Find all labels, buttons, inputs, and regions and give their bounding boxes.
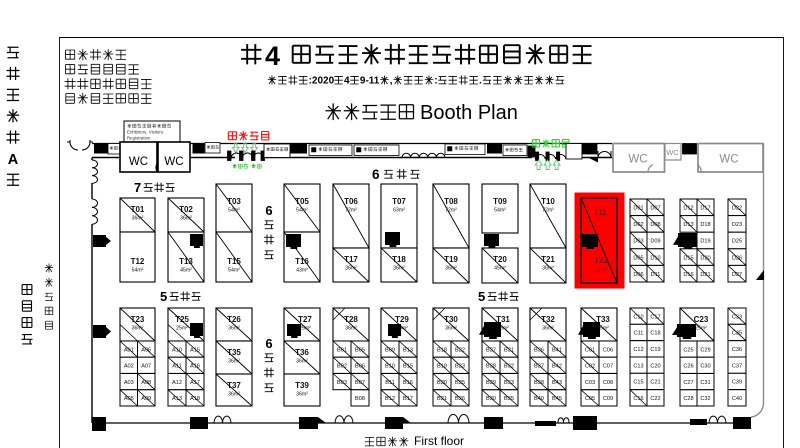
svg-text:T28: T28 (344, 315, 358, 324)
svg-text:36m²: 36m² (228, 391, 240, 397)
svg-text:D05: D05 (633, 255, 643, 261)
svg-text:45m²: 45m² (180, 267, 192, 273)
svg-text:C18: C18 (650, 331, 660, 337)
svg-text:A06: A06 (141, 347, 151, 353)
svg-text:A18: A18 (190, 396, 200, 402)
svg-text:36m²: 36m² (445, 325, 457, 331)
svg-text:D19: D19 (700, 239, 710, 245)
svg-text:T11: T11 (593, 208, 607, 217)
svg-text:C22: C22 (650, 396, 660, 402)
svg-text:C21: C21 (650, 380, 660, 386)
svg-text:A10: A10 (172, 347, 182, 353)
svg-text:C12: C12 (633, 347, 643, 353)
svg-text:72m²: 72m² (345, 207, 357, 213)
svg-text:B02: B02 (337, 364, 347, 370)
svg-text:T32: T32 (541, 315, 555, 324)
svg-text:WC: WC (719, 154, 738, 166)
svg-text:T05: T05 (295, 197, 309, 206)
svg-text:C35: C35 (732, 331, 742, 337)
svg-text:B25: B25 (455, 380, 465, 386)
svg-text:B36: B36 (534, 347, 544, 353)
svg-text:T39: T39 (295, 381, 309, 390)
svg-text:B12: B12 (385, 396, 395, 402)
svg-text:C19: C19 (650, 347, 660, 353)
svg-text:D21: D21 (700, 272, 710, 278)
svg-text:A11: A11 (172, 364, 182, 370)
svg-text:A08: A08 (141, 380, 151, 386)
svg-text:C28: C28 (683, 396, 693, 402)
svg-text:C30: C30 (700, 364, 710, 370)
svg-text:D12: D12 (683, 206, 693, 212)
svg-text:36m²: 36m² (180, 215, 192, 221)
svg-text:B09: B09 (385, 347, 395, 353)
svg-text:B17: B17 (403, 396, 413, 402)
svg-text:D08: D08 (650, 222, 660, 228)
svg-text:T37: T37 (227, 381, 241, 390)
svg-text:T25: T25 (175, 315, 189, 324)
svg-text:A: A (8, 152, 19, 168)
svg-text:72m²: 72m² (445, 207, 457, 213)
svg-text:36m²: 36m² (132, 325, 144, 331)
svg-text:T08: T08 (444, 197, 458, 206)
svg-text:C31: C31 (700, 380, 710, 386)
svg-text:A02: A02 (124, 364, 134, 370)
svg-text:B23: B23 (455, 364, 465, 370)
svg-text:B21: B21 (437, 396, 447, 402)
svg-text:9-11: 9-11 (360, 76, 380, 87)
svg-text:B13: B13 (403, 347, 413, 353)
svg-text:C27: C27 (683, 380, 693, 386)
svg-text:B37: B37 (534, 364, 544, 370)
svg-text:54m²: 54m² (494, 207, 506, 213)
svg-text:T07: T07 (392, 197, 406, 206)
svg-text:B30: B30 (486, 396, 496, 402)
svg-text:T20: T20 (493, 255, 507, 264)
svg-text:C39: C39 (732, 380, 742, 386)
svg-text:36m²: 36m² (345, 265, 357, 271)
svg-text:C02: C02 (585, 364, 595, 370)
svg-text:D17: D17 (700, 206, 710, 212)
svg-text:C37: C37 (732, 363, 742, 369)
svg-text:43m²: 43m² (296, 267, 308, 273)
svg-text:D10: D10 (650, 255, 660, 261)
svg-text:D01: D01 (633, 206, 643, 212)
svg-text:36m²: 36m² (296, 358, 308, 364)
svg-text:4: 4 (344, 76, 350, 87)
svg-text:T06: T06 (344, 197, 358, 206)
svg-text:C09: C09 (603, 396, 613, 402)
svg-text:C03: C03 (585, 380, 595, 386)
svg-text:C06: C06 (603, 347, 613, 353)
svg-text:T13: T13 (179, 257, 193, 266)
svg-text:B22: B22 (455, 347, 465, 353)
svg-text:First floor: First floor (414, 434, 464, 448)
svg-text:.: . (479, 76, 482, 87)
svg-text:D27: D27 (732, 272, 742, 278)
svg-text:B10: B10 (385, 364, 395, 370)
svg-text:54m²: 54m² (228, 267, 240, 273)
svg-text:7: 7 (134, 180, 141, 195)
svg-text:B19: B19 (437, 364, 447, 370)
svg-text:WC: WC (666, 148, 679, 157)
svg-text:6: 6 (265, 203, 272, 218)
svg-text:C10: C10 (633, 314, 643, 320)
svg-text:B03: B03 (337, 380, 347, 386)
svg-text:C07: C07 (603, 364, 613, 370)
svg-text:5: 5 (478, 289, 485, 304)
svg-text:D23: D23 (732, 222, 742, 228)
svg-text:25m²: 25m² (176, 325, 188, 331)
svg-text:D20: D20 (700, 255, 710, 261)
svg-text:36m²: 36m² (393, 265, 405, 271)
svg-text:C40: C40 (732, 396, 742, 402)
svg-text:A13: A13 (172, 396, 182, 402)
svg-text:C01: C01 (585, 347, 595, 353)
svg-text:6: 6 (265, 336, 272, 351)
svg-text:D07: D07 (650, 206, 660, 212)
svg-text:B18: B18 (437, 347, 447, 353)
svg-text:36m²: 36m² (228, 325, 240, 331)
svg-text:T29: T29 (395, 315, 409, 324)
svg-text::2020: :2020 (309, 76, 335, 87)
svg-text:A07: A07 (141, 364, 151, 370)
svg-text:B35: B35 (504, 396, 514, 402)
svg-text:A12: A12 (172, 380, 182, 386)
svg-text:D15: D15 (683, 255, 693, 261)
svg-text:54m²: 54m² (132, 267, 144, 273)
svg-text:T02: T02 (179, 205, 193, 214)
svg-text:C15: C15 (633, 380, 643, 386)
svg-text:D16: D16 (683, 272, 693, 278)
svg-text:36m²: 36m² (542, 325, 554, 331)
svg-text:D03: D03 (633, 239, 643, 245)
svg-text:T16: T16 (295, 257, 309, 266)
svg-text:,: , (390, 76, 393, 87)
svg-text:A17: A17 (190, 380, 200, 386)
svg-text:T17: T17 (344, 255, 358, 264)
svg-text:6: 6 (372, 167, 380, 182)
svg-text:A01: A01 (124, 347, 134, 353)
svg-text:T22: T22 (594, 256, 608, 265)
svg-text:B06: B06 (355, 364, 365, 370)
svg-text:B40: B40 (534, 396, 544, 402)
svg-text:T27: T27 (298, 315, 312, 324)
svg-text:C17: C17 (650, 314, 660, 320)
svg-text:Registration: Registration (127, 136, 151, 141)
svg-text:B26: B26 (455, 396, 465, 402)
svg-text:5: 5 (160, 289, 167, 304)
svg-text:B42: B42 (552, 364, 562, 370)
svg-text:B08: B08 (355, 396, 365, 402)
svg-text:D02: D02 (633, 222, 643, 228)
svg-text:36m²: 36m² (228, 358, 240, 364)
svg-text:25m²: 25m² (695, 325, 707, 331)
svg-text:C29: C29 (700, 347, 710, 353)
svg-text:B43: B43 (552, 380, 562, 386)
svg-text:36m²: 36m² (542, 265, 554, 271)
svg-text:T21: T21 (541, 255, 555, 264)
svg-text:D06: D06 (633, 272, 643, 278)
svg-text:A05: A05 (124, 396, 134, 402)
svg-text:C26: C26 (683, 364, 693, 370)
svg-text:45m²: 45m² (494, 265, 506, 271)
svg-text:C11: C11 (634, 331, 644, 337)
svg-text:T35: T35 (227, 348, 241, 357)
svg-text:T09: T09 (493, 197, 507, 206)
svg-text:T18: T18 (392, 255, 406, 264)
svg-text:Booth Plan: Booth Plan (420, 102, 518, 124)
svg-text:54m²: 54m² (296, 207, 308, 213)
svg-text:D25: D25 (732, 239, 742, 245)
svg-text:WC: WC (628, 154, 647, 166)
svg-text:WC: WC (129, 156, 148, 168)
svg-text:T19: T19 (444, 255, 458, 264)
svg-text:B20: B20 (437, 380, 447, 386)
svg-text:D09: D09 (650, 239, 660, 245)
svg-text:B31: B31 (504, 347, 514, 353)
svg-text:B05: B05 (355, 347, 365, 353)
svg-text:C08: C08 (603, 380, 613, 386)
svg-text:T30: T30 (444, 315, 458, 324)
svg-text:54m²: 54m² (228, 207, 240, 213)
svg-text:A09: A09 (141, 396, 151, 402)
svg-text:WC: WC (164, 156, 183, 168)
svg-text:D26: D26 (732, 255, 742, 261)
svg-text:C25: C25 (683, 347, 693, 353)
svg-text:B33: B33 (504, 380, 514, 386)
svg-text:C32: C32 (700, 396, 710, 402)
svg-text:C05: C05 (585, 396, 595, 402)
svg-text:D11: D11 (651, 272, 661, 278)
svg-text:C16: C16 (633, 396, 643, 402)
svg-text:T12: T12 (131, 257, 145, 266)
svg-text:C20: C20 (650, 363, 660, 369)
svg-text:T26: T26 (227, 315, 241, 324)
svg-text:Exhibitors, Visitors: Exhibitors, Visitors (127, 130, 164, 135)
svg-text:63m²: 63m² (393, 207, 405, 213)
svg-text:C13: C13 (633, 363, 643, 369)
svg-text:T23: T23 (131, 315, 145, 324)
svg-text:4: 4 (265, 41, 280, 71)
svg-text:81m²: 81m² (595, 268, 607, 274)
svg-text:C33: C33 (732, 314, 742, 320)
svg-text:B07: B07 (355, 380, 365, 386)
svg-text:A15: A15 (190, 347, 200, 353)
svg-text:B15: B15 (403, 364, 413, 370)
svg-text:B38: B38 (534, 380, 544, 386)
svg-text::: : (434, 76, 437, 87)
svg-text:T10: T10 (541, 197, 555, 206)
svg-text:36m²: 36m² (132, 215, 144, 221)
svg-text:36m²: 36m² (296, 391, 308, 397)
svg-text:A16: A16 (190, 364, 200, 370)
svg-text:A03: A03 (124, 380, 134, 386)
svg-text:B32: B32 (504, 364, 514, 370)
svg-text:D18: D18 (700, 222, 710, 228)
svg-text:B41: B41 (552, 347, 562, 353)
svg-text:T03: T03 (227, 197, 241, 206)
svg-text:36m²: 36m² (345, 325, 357, 331)
svg-text:B45: B45 (552, 396, 562, 402)
svg-text:C36: C36 (732, 347, 742, 353)
svg-text:B28: B28 (486, 364, 496, 370)
svg-text:C23: C23 (694, 315, 709, 324)
svg-text:72m²: 72m² (542, 207, 554, 213)
svg-text:D22: D22 (732, 206, 742, 212)
svg-text:T15: T15 (227, 257, 241, 266)
svg-text:B29: B29 (486, 380, 496, 386)
svg-text:T36: T36 (295, 348, 309, 357)
svg-text:36m²: 36m² (445, 265, 457, 271)
svg-text:D13: D13 (683, 222, 693, 228)
svg-text:B27: B27 (486, 347, 496, 353)
svg-text:B16: B16 (403, 380, 413, 386)
svg-text:B01: B01 (337, 347, 347, 353)
svg-text:B11: B11 (385, 380, 395, 386)
svg-text:T01: T01 (131, 205, 145, 214)
